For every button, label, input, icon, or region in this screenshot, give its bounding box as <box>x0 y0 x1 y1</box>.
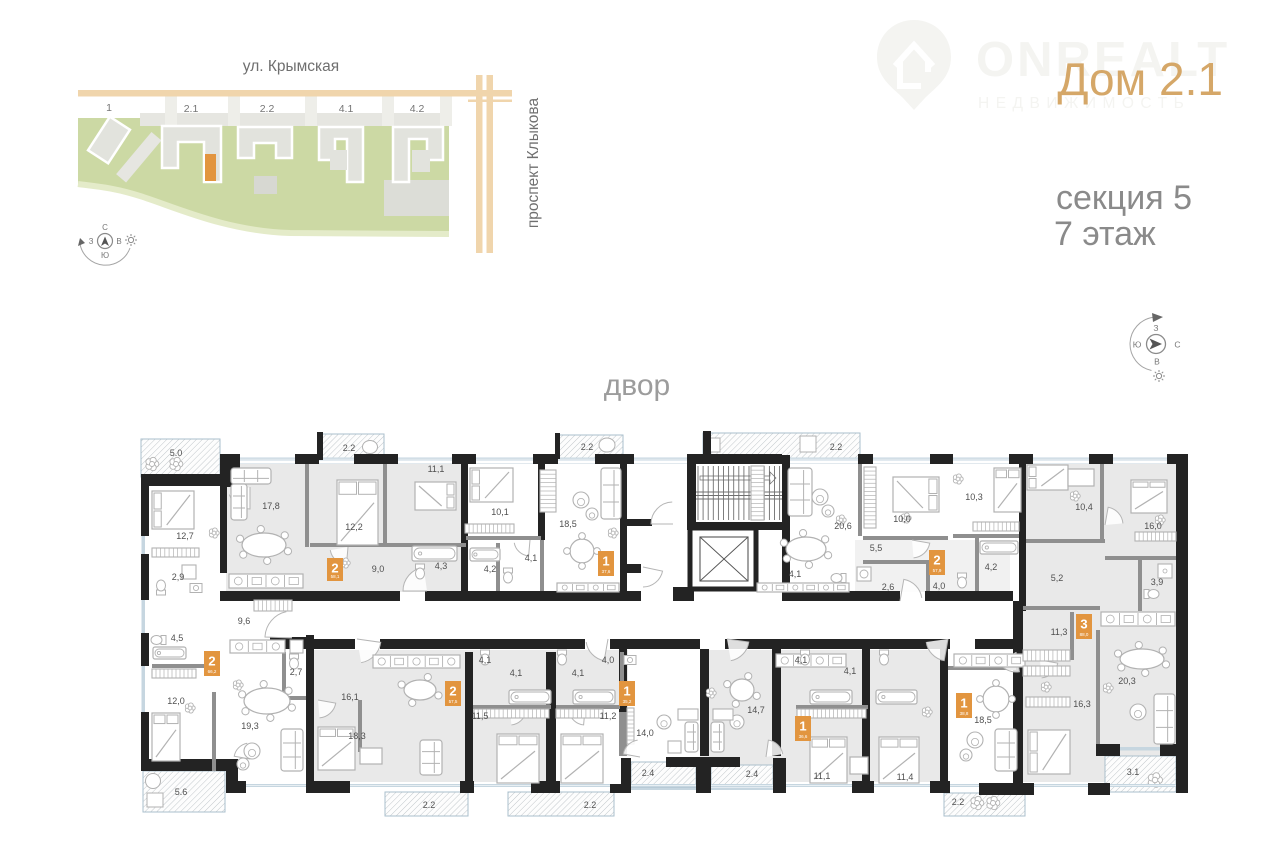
svg-text:З: З <box>1153 323 1158 333</box>
svg-text:2.2: 2.2 <box>952 797 965 807</box>
svg-text:1: 1 <box>623 684 630 699</box>
svg-text:2,6: 2,6 <box>882 582 895 592</box>
svg-text:11,1: 11,1 <box>428 464 445 474</box>
svg-text:18,5: 18,5 <box>974 715 992 725</box>
svg-text:2,9: 2,9 <box>172 572 185 582</box>
svg-text:В: В <box>1154 357 1160 367</box>
svg-text:36,6: 36,6 <box>799 734 808 739</box>
svg-text:2.2: 2.2 <box>423 800 436 810</box>
svg-text:С: С <box>102 223 108 232</box>
svg-text:1: 1 <box>799 719 806 734</box>
svg-text:4,1: 4,1 <box>795 655 808 665</box>
svg-text:5,5: 5,5 <box>870 543 883 553</box>
svg-text:4,1: 4,1 <box>844 666 857 676</box>
svg-text:5,2: 5,2 <box>1051 573 1064 583</box>
svg-text:2.2: 2.2 <box>584 800 597 810</box>
svg-text:7 этаж: 7 этаж <box>1054 215 1156 253</box>
svg-text:В: В <box>116 237 121 246</box>
svg-text:66,2: 66,2 <box>208 669 217 674</box>
svg-text:4.2: 4.2 <box>410 103 425 115</box>
svg-text:4,1: 4,1 <box>572 668 585 678</box>
svg-text:З: З <box>89 237 94 246</box>
svg-text:58,1: 58,1 <box>331 574 340 579</box>
svg-text:10,0: 10,0 <box>893 514 911 524</box>
svg-text:20,3: 20,3 <box>1118 676 1136 686</box>
svg-text:10,4: 10,4 <box>1075 502 1093 512</box>
svg-text:19,3: 19,3 <box>241 721 259 731</box>
svg-text:18,5: 18,5 <box>559 519 577 529</box>
svg-text:2: 2 <box>208 654 215 669</box>
svg-text:5.0: 5.0 <box>170 448 183 458</box>
svg-text:Ю: Ю <box>1133 340 1142 350</box>
svg-text:4,1: 4,1 <box>525 553 538 563</box>
svg-text:14,7: 14,7 <box>747 705 765 715</box>
svg-text:2,7: 2,7 <box>290 667 303 677</box>
svg-text:37,6: 37,6 <box>602 569 611 574</box>
svg-text:14,0: 14,0 <box>636 728 654 738</box>
svg-text:2.2: 2.2 <box>830 442 843 452</box>
svg-text:16,3: 16,3 <box>1073 699 1091 709</box>
svg-text:4,1: 4,1 <box>479 655 492 665</box>
svg-text:4,3: 4,3 <box>435 561 448 571</box>
svg-text:11,2: 11,2 <box>600 711 617 721</box>
svg-text:9,6: 9,6 <box>238 616 251 626</box>
svg-text:1: 1 <box>602 554 609 569</box>
svg-text:11,3: 11,3 <box>1051 627 1068 637</box>
svg-text:4,1: 4,1 <box>510 668 523 678</box>
svg-text:двор: двор <box>604 369 670 402</box>
svg-text:Ю: Ю <box>101 251 109 260</box>
svg-text:4.1: 4.1 <box>339 103 354 115</box>
svg-text:4,2: 4,2 <box>484 564 497 574</box>
svg-text:2.1: 2.1 <box>184 103 199 115</box>
svg-text:10,3: 10,3 <box>965 492 983 502</box>
svg-text:4,5: 4,5 <box>171 633 184 643</box>
svg-text:2.4: 2.4 <box>642 768 655 778</box>
svg-text:4,0: 4,0 <box>933 581 946 591</box>
svg-text:3,9: 3,9 <box>1151 577 1164 587</box>
svg-text:10,1: 10,1 <box>491 507 509 517</box>
svg-text:ул. Крымская: ул. Крымская <box>243 58 339 75</box>
svg-text:4,0: 4,0 <box>602 655 615 665</box>
svg-text:16,1: 16,1 <box>341 692 359 702</box>
svg-text:20,6: 20,6 <box>834 521 852 531</box>
svg-text:2: 2 <box>933 553 940 568</box>
svg-text:17,8: 17,8 <box>262 501 280 511</box>
svg-text:11,1: 11,1 <box>814 771 831 781</box>
svg-text:1: 1 <box>106 102 112 114</box>
svg-text:2: 2 <box>449 684 456 699</box>
svg-text:88,0: 88,0 <box>1080 632 1089 637</box>
svg-text:9,0: 9,0 <box>372 564 385 574</box>
svg-text:С: С <box>1174 340 1180 350</box>
svg-text:2.2: 2.2 <box>581 442 594 452</box>
svg-text:57,5: 57,5 <box>449 699 458 704</box>
svg-text:11,4: 11,4 <box>897 772 914 782</box>
svg-text:2.4: 2.4 <box>746 769 759 779</box>
svg-text:4,2: 4,2 <box>985 562 998 572</box>
svg-text:38,8: 38,8 <box>960 711 969 716</box>
svg-text:5.6: 5.6 <box>175 787 188 797</box>
svg-text:12,0: 12,0 <box>167 696 185 706</box>
svg-text:35,2: 35,2 <box>623 699 632 704</box>
svg-text:1: 1 <box>960 696 967 711</box>
svg-text:16,0: 16,0 <box>1144 521 1162 531</box>
svg-text:4,1: 4,1 <box>789 569 802 579</box>
svg-text:3: 3 <box>1080 617 1087 632</box>
svg-text:11,5: 11,5 <box>472 711 489 721</box>
svg-text:57,9: 57,9 <box>933 568 942 573</box>
svg-text:2.2: 2.2 <box>343 443 356 453</box>
svg-text:Дом 2.1: Дом 2.1 <box>1057 53 1223 105</box>
svg-text:18,3: 18,3 <box>348 731 366 741</box>
svg-text:3.1: 3.1 <box>1127 767 1140 777</box>
svg-text:2.2: 2.2 <box>260 103 275 115</box>
svg-text:12,7: 12,7 <box>176 531 194 541</box>
svg-text:проспект Клыкова: проспект Клыкова <box>525 98 542 229</box>
svg-text:секция 5: секция 5 <box>1056 179 1192 217</box>
svg-text:12,2: 12,2 <box>345 522 363 532</box>
